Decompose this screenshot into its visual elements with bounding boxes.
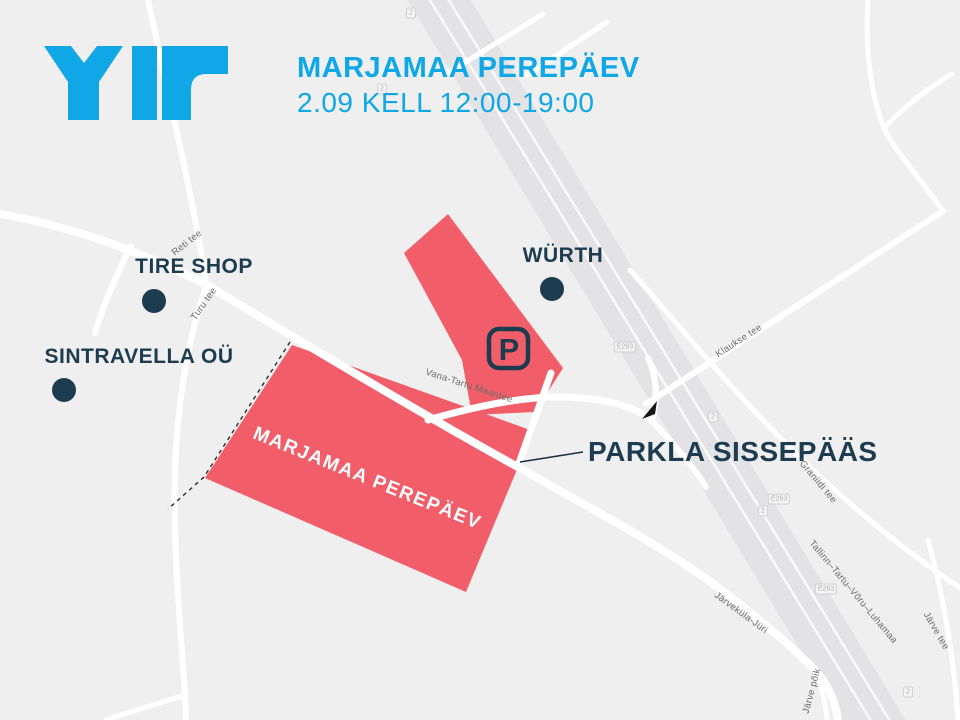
- wurth-dot: [540, 277, 564, 301]
- callout-parkla-sissepaas: PARKLA SISSEPÄÄS: [588, 436, 878, 468]
- sintravella-dot: [52, 378, 76, 402]
- yit-logo: [44, 42, 228, 126]
- tire-shop-dot: [142, 289, 166, 313]
- road-klaukse-tee: [646, 211, 943, 404]
- page-title: MARJAMAA PEREPÄEV: [297, 52, 640, 85]
- poi-label-sintravella: SINTRAVELLA OÜ: [45, 345, 234, 369]
- event-map-poster: P MARJAMAA PEREPÄEV 2.09 KELL 12:00-19:0…: [0, 0, 960, 720]
- road-turu-branch: [106, 695, 185, 720]
- logo-letter-i: [132, 46, 157, 120]
- route-shield-e263-mid: E263: [614, 342, 636, 353]
- route-shield-2-top: 2: [406, 8, 416, 19]
- route-shield-e263-bottom: E263: [815, 584, 837, 595]
- logo-letter-y: [44, 46, 123, 120]
- road-northeast: [884, 74, 952, 128]
- callout-pointer-line: [520, 452, 583, 462]
- route-shield-2-mid: 2: [708, 412, 718, 423]
- page-subtitle: 2.09 KELL 12:00-19:00: [297, 87, 594, 119]
- route-shield-2-bottom: 2: [903, 687, 913, 698]
- route-shield-2-lower: 2: [758, 506, 768, 517]
- route-shield-e263-lower: E263: [768, 494, 790, 505]
- road-southwest-stub: [95, 246, 131, 333]
- poi-label-tire-shop: TIRE SHOP: [135, 255, 253, 279]
- parking-letter: P: [499, 332, 520, 367]
- logo-letter-t: [162, 46, 228, 120]
- poi-label-wurth: WÜRTH: [523, 244, 604, 268]
